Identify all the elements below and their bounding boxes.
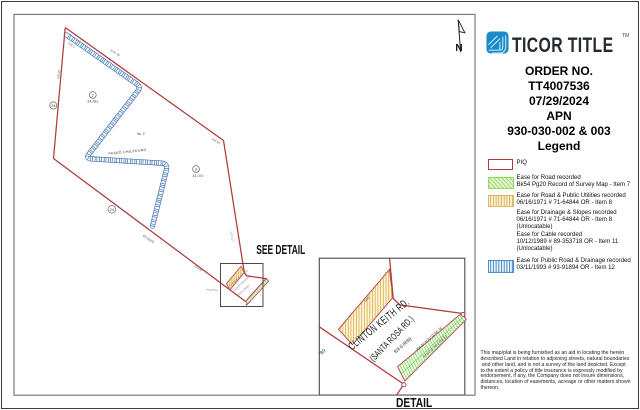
svg-text:No. 2: No. 2 <box>137 132 145 136</box>
svg-text:2241.18′: 2241.18′ <box>109 48 121 58</box>
svg-text:41.07±: 41.07± <box>193 174 204 178</box>
svg-text:3: 3 <box>195 166 198 171</box>
svg-text:PASEO CHILPEURO: PASEO CHILPEURO <box>108 148 147 156</box>
svg-text:63.56(R): 63.56(R) <box>142 234 155 245</box>
svg-text:24.28±: 24.28± <box>87 100 98 104</box>
svg-text:N: N <box>455 43 462 54</box>
svg-text:150.98′: 150.98′ <box>193 264 203 273</box>
svg-text:2: 2 <box>92 92 95 97</box>
svg-text:1327.67′: 1327.67′ <box>229 231 235 243</box>
svg-text:SEE DETAIL: SEE DETAIL <box>256 243 305 257</box>
svg-text:24: 24 <box>110 207 115 212</box>
svg-text:24: 24 <box>51 103 56 108</box>
